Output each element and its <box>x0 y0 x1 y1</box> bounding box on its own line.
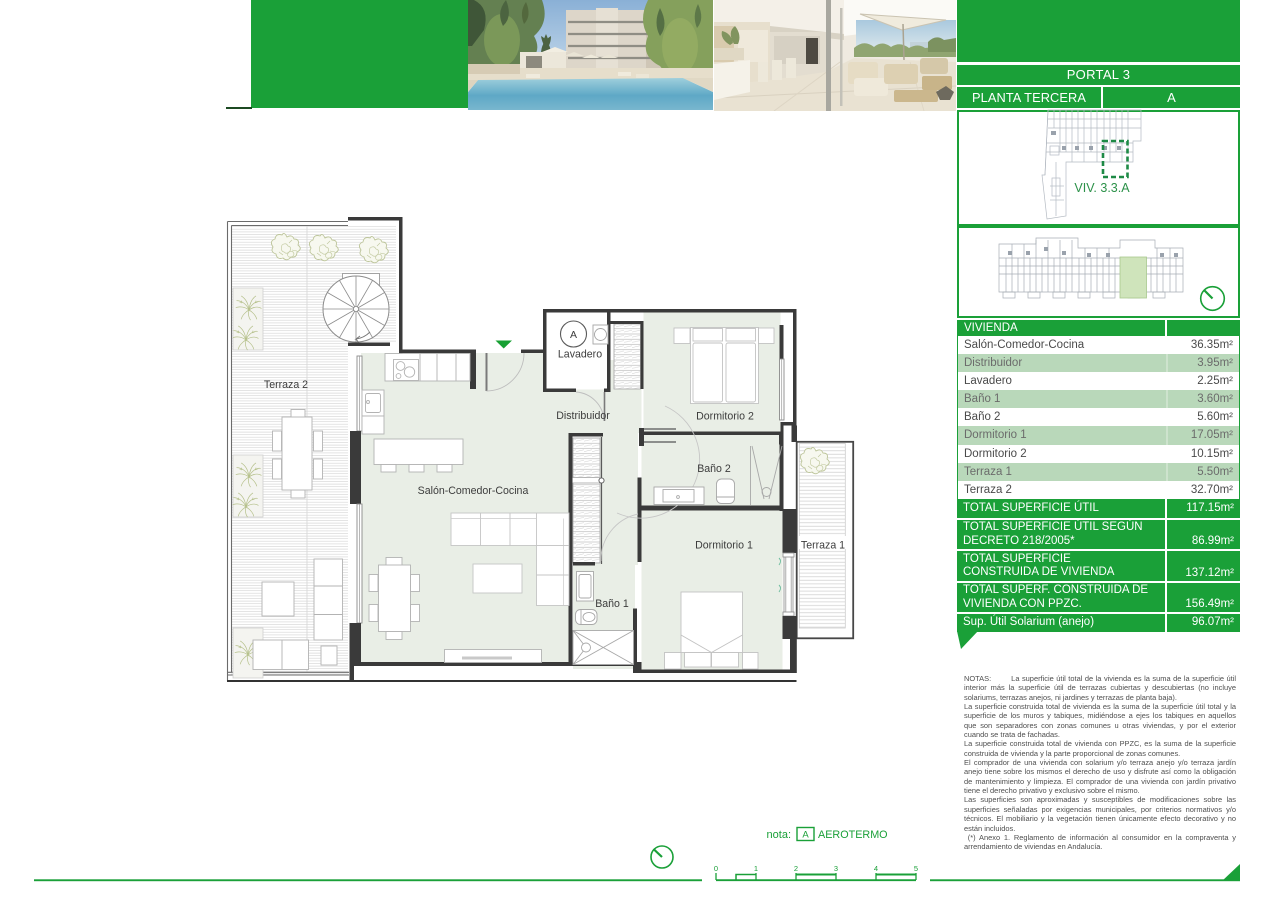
svg-text:Baño 1: Baño 1 <box>595 598 629 610</box>
svg-text:0: 0 <box>714 864 718 873</box>
svg-text:2: 2 <box>794 864 798 873</box>
svg-text:Salón-Comedor-Cocina: Salón-Comedor-Cocina <box>418 485 529 497</box>
svg-text:nota:: nota: <box>767 829 791 841</box>
svg-text:A: A <box>570 329 577 341</box>
svg-text:Distribuidor: Distribuidor <box>556 410 610 422</box>
svg-text:AEROTERMO: AEROTERMO <box>818 829 888 841</box>
svg-text:Baño 2: Baño 2 <box>697 463 731 475</box>
svg-text:3: 3 <box>834 864 838 873</box>
svg-text:Terraza 1: Terraza 1 <box>801 540 845 552</box>
svg-text:A: A <box>802 830 809 841</box>
svg-text:VIV. 3.3.A: VIV. 3.3.A <box>1074 181 1130 195</box>
svg-text:5: 5 <box>914 864 918 873</box>
svg-text:Dormitorio 2: Dormitorio 2 <box>696 411 754 423</box>
svg-text:Dormitorio 1: Dormitorio 1 <box>695 540 753 552</box>
svg-text:Terraza 2: Terraza 2 <box>264 379 308 391</box>
svg-text:1: 1 <box>754 864 758 873</box>
svg-text:Lavadero: Lavadero <box>558 349 602 361</box>
svg-text:4: 4 <box>874 864 878 873</box>
